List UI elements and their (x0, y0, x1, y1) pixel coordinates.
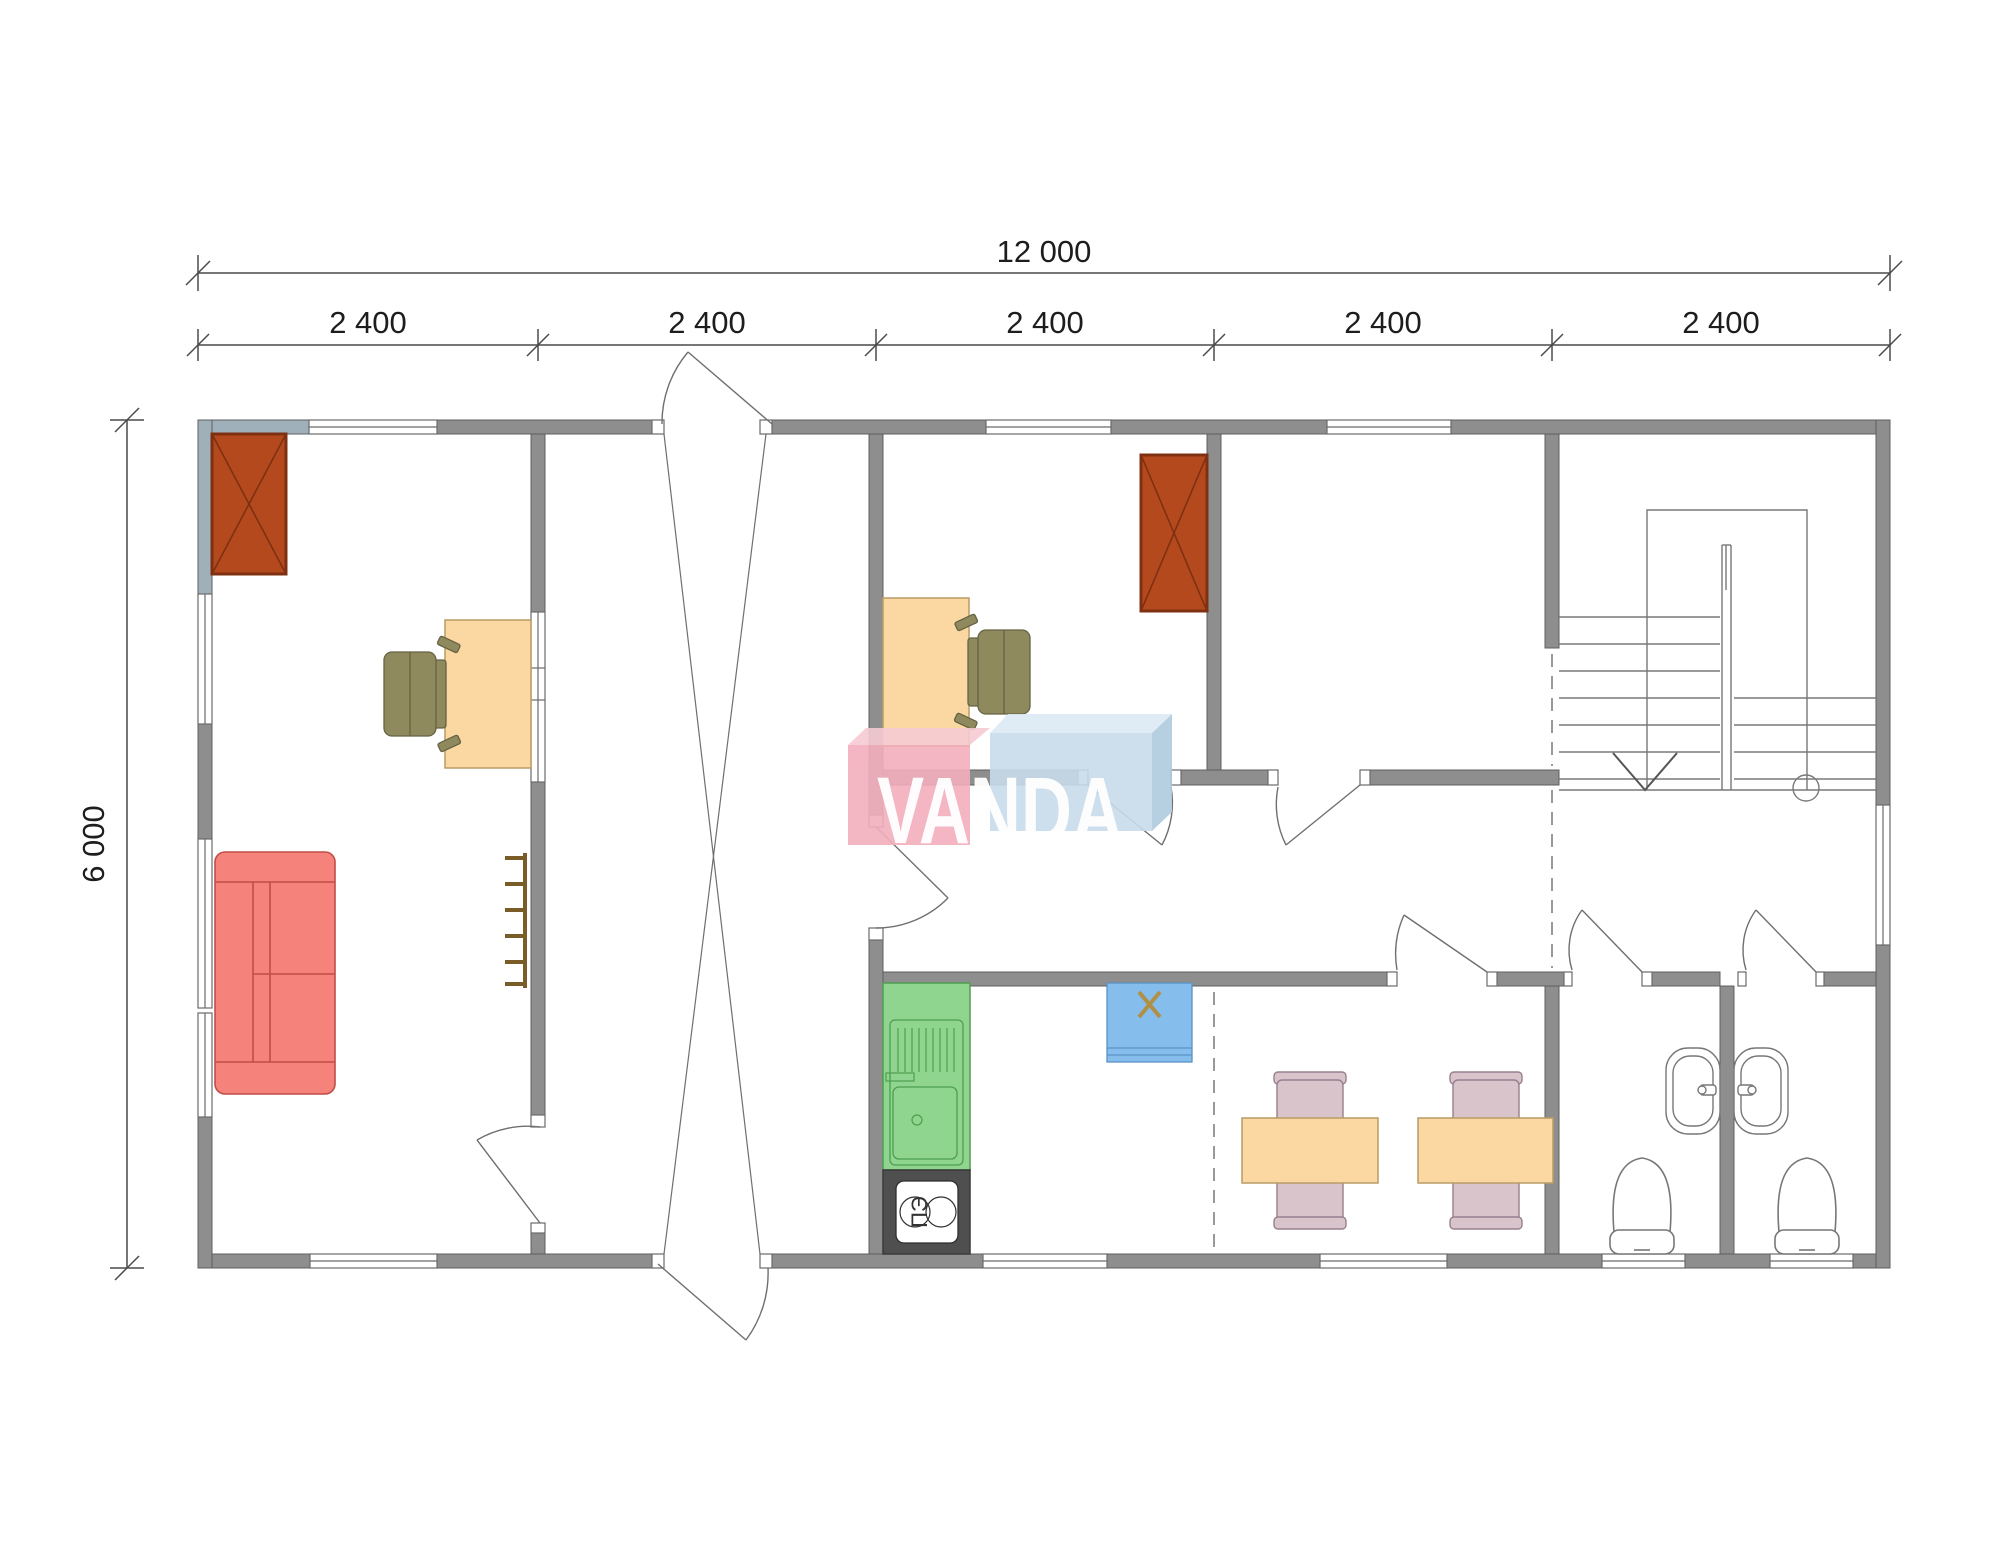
dining-door (1396, 915, 1487, 972)
floor-plan-page: 12 000 2 400 2 400 2 400 2 400 2 400 6 0… (0, 0, 2000, 1563)
window (1602, 1254, 1685, 1268)
wall-top-tinted (198, 420, 309, 434)
interior-window (531, 612, 545, 782)
bathroom-left-door (1569, 910, 1642, 972)
dining-table (1418, 1118, 1553, 1183)
stair-stringer (1722, 545, 1731, 790)
electric-stove-label: ПЭ (907, 1196, 932, 1228)
wash-basin-right (1734, 1048, 1788, 1134)
window (310, 1254, 437, 1268)
dim-segment-1-label: 2 400 (329, 305, 407, 340)
desk-middle-office (883, 598, 969, 746)
entry-door-top (662, 352, 772, 424)
dim-segment-2-label: 2 400 (668, 305, 746, 340)
floor-plan-drawing: 12 000 2 400 2 400 2 400 2 400 2 400 6 0… (0, 0, 2000, 1563)
dining-set-2 (1418, 1072, 1553, 1229)
dim-segment-5-label: 2 400 (1682, 305, 1760, 340)
hall-crossing-lines (664, 434, 766, 1254)
watermark-pink-top (848, 728, 990, 745)
appliance-box (1107, 983, 1192, 1062)
dining-table (1242, 1118, 1378, 1183)
window (1327, 420, 1451, 434)
dimension-height (110, 408, 144, 1280)
dim-segment-4-label: 2 400 (1344, 305, 1422, 340)
dim-segment-3-label: 2 400 (1006, 305, 1084, 340)
entry-door-bottom (658, 1264, 768, 1340)
dining-set-1 (1242, 1072, 1378, 1229)
window (1320, 1254, 1447, 1268)
dim-total-width-label: 12 000 (997, 234, 1092, 269)
wash-basin-left (1666, 1048, 1720, 1134)
window (986, 420, 1111, 434)
window (198, 839, 212, 1008)
window (983, 1254, 1107, 1268)
window (309, 420, 437, 434)
wood-stove-left-office (212, 434, 286, 574)
stair-opening-outline (1647, 510, 1807, 790)
watermark-blue-side (1152, 714, 1172, 831)
stair-down-arrow (1613, 753, 1677, 790)
left-room-door (477, 1126, 540, 1223)
dim-height-label: 6 000 (76, 805, 111, 883)
stair-treads (1559, 617, 1876, 790)
toilet-right (1775, 1158, 1839, 1254)
sofa (215, 852, 335, 1094)
toilet-left (1610, 1158, 1674, 1254)
window (1770, 1254, 1853, 1268)
staircase (1559, 510, 1876, 801)
window (1876, 805, 1890, 945)
bathroom-right-door (1743, 910, 1816, 972)
electric-stove: ПЭ (883, 1170, 970, 1254)
window (198, 594, 212, 724)
watermark-brand-text: VANDA (877, 758, 1123, 864)
window (198, 1013, 212, 1117)
watermark-blue-top (990, 714, 1172, 733)
office3-door (1276, 785, 1360, 845)
wood-stove-middle-office (1141, 455, 1207, 611)
kitchen-sink-unit (883, 983, 970, 1170)
desk-left-office (445, 620, 531, 768)
coat-hooks (505, 853, 525, 988)
